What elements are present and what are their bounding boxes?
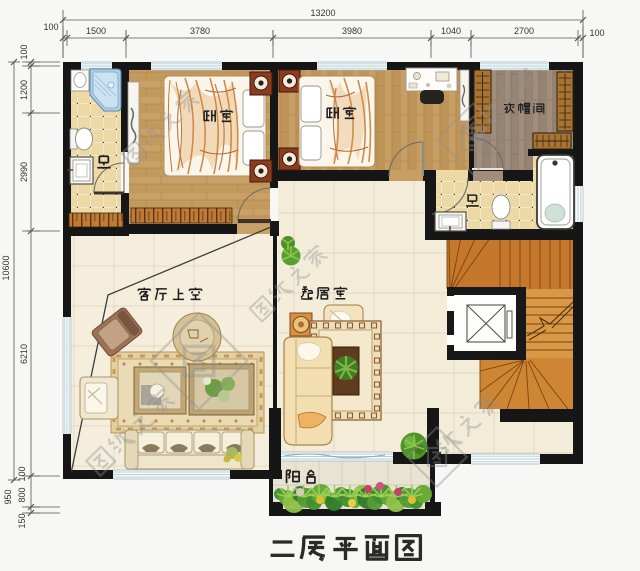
svg-text:100: 100: [589, 28, 604, 38]
svg-text:1500: 1500: [86, 26, 106, 36]
svg-text:3780: 3780: [190, 26, 210, 36]
svg-text:1040: 1040: [441, 26, 461, 36]
svg-text:3980: 3980: [342, 26, 362, 36]
svg-text:6210: 6210: [19, 344, 29, 364]
svg-text:10600: 10600: [1, 255, 11, 280]
svg-text:2700: 2700: [514, 26, 534, 36]
svg-text:2990: 2990: [19, 162, 29, 182]
svg-text:1200: 1200: [19, 80, 29, 100]
svg-text:100: 100: [43, 22, 58, 32]
svg-text:13200: 13200: [310, 8, 335, 18]
svg-text:100: 100: [17, 466, 27, 481]
svg-text:950: 950: [3, 489, 13, 504]
svg-text:100: 100: [19, 44, 29, 59]
svg-text:800: 800: [17, 487, 27, 502]
svg-text:150: 150: [17, 513, 27, 528]
